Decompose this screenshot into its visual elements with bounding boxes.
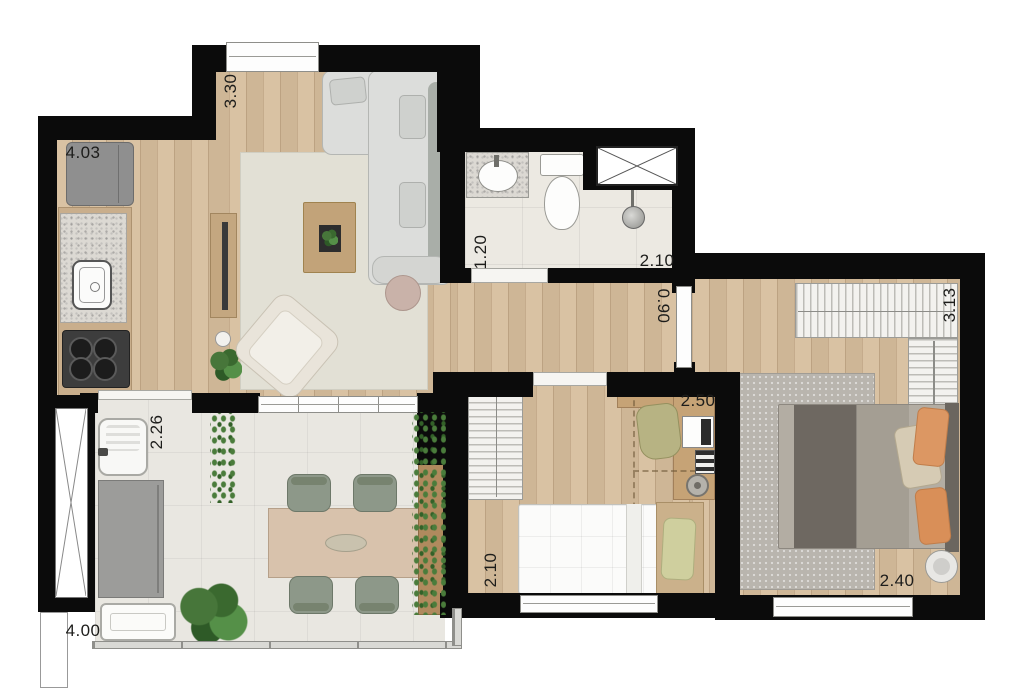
master-right-wall	[960, 253, 985, 620]
dimension-label-kitchen: 4.03	[55, 143, 111, 163]
laundry-sink	[98, 418, 148, 476]
sofa-cushion-1	[329, 76, 368, 106]
side-table	[385, 275, 421, 311]
master-wardrobe-top	[795, 283, 958, 338]
pouf	[925, 550, 958, 583]
desk-speaker	[695, 450, 715, 474]
bathroom-duct-shaft	[596, 146, 678, 186]
sofa-cushion-3	[399, 182, 426, 228]
console-dish	[215, 331, 231, 347]
balcony-utility-shaft	[55, 408, 88, 598]
vertical-garden-plants	[412, 412, 446, 615]
stove	[62, 330, 130, 388]
dining-chair-3	[289, 576, 333, 614]
single-bed-sheet-fold	[626, 504, 642, 594]
dimension-label-master-width: 2.40	[869, 571, 925, 591]
dining-table	[268, 508, 420, 578]
shower-head-icon	[618, 186, 648, 230]
dining-chair-2	[353, 474, 397, 512]
coffee-table	[303, 202, 356, 273]
balcony-sliding-door	[258, 396, 418, 413]
master-pillow-orange-1	[912, 406, 950, 467]
balcony-top-wall-mid	[192, 393, 260, 413]
dimension-label-living: 3.30	[221, 63, 241, 119]
tv	[222, 222, 228, 310]
bathroom-bottom-wall-left	[440, 268, 471, 283]
bathroom-sink-counter	[466, 152, 529, 198]
master-window	[773, 597, 913, 617]
single-bed-mattress	[518, 504, 668, 594]
living-right-corner-wall	[437, 45, 480, 135]
balcony-railing-return	[452, 608, 462, 646]
dimension-label-bathroom-length: 2.10	[629, 251, 685, 271]
master-door-leaf	[676, 286, 692, 368]
dimension-label-bedroom2-length: 2.50	[670, 391, 726, 411]
floor-plan: 4.03 3.30 1.20 2.10 0.90 2.50 2.10 3.13 …	[0, 0, 1024, 700]
bedroom2-door-threshold	[533, 372, 607, 386]
kitchen-balcony-threshold	[98, 390, 192, 400]
dimension-label-hallway: 0.90	[653, 278, 673, 334]
dimension-label-bedroom2-width: 2.10	[481, 542, 501, 598]
dining-chair-4	[355, 576, 399, 614]
washing-machine-cabinet	[98, 480, 164, 598]
bedroom2-window	[520, 595, 658, 613]
dimension-label-bathroom-width: 1.20	[471, 224, 491, 280]
balcony-railing	[92, 641, 462, 649]
toilet	[538, 152, 584, 244]
balcony-bench	[100, 603, 176, 641]
master-top-wall	[692, 253, 985, 279]
dining-chair-1	[287, 474, 331, 512]
kitchen-top-wall	[38, 116, 216, 140]
dimension-label-master-length: 3.13	[940, 277, 960, 333]
sofa-cushion-2	[399, 95, 426, 139]
kitchen-sink	[72, 260, 112, 310]
single-bed-pillow	[660, 517, 696, 581]
balcony-plant	[178, 583, 248, 645]
desk-monitor	[682, 416, 714, 448]
desk-stool	[686, 474, 709, 497]
dimension-label-balcony-length: 4.00	[55, 621, 111, 641]
master-pillow-orange-2	[914, 486, 952, 545]
wall-vine-plant	[210, 413, 236, 503]
bedroom2-wardrobe	[468, 387, 523, 500]
bathroom-left-wall	[440, 128, 465, 283]
hallway-floor	[457, 280, 678, 375]
dimension-label-balcony-depth: 2.26	[147, 404, 167, 460]
